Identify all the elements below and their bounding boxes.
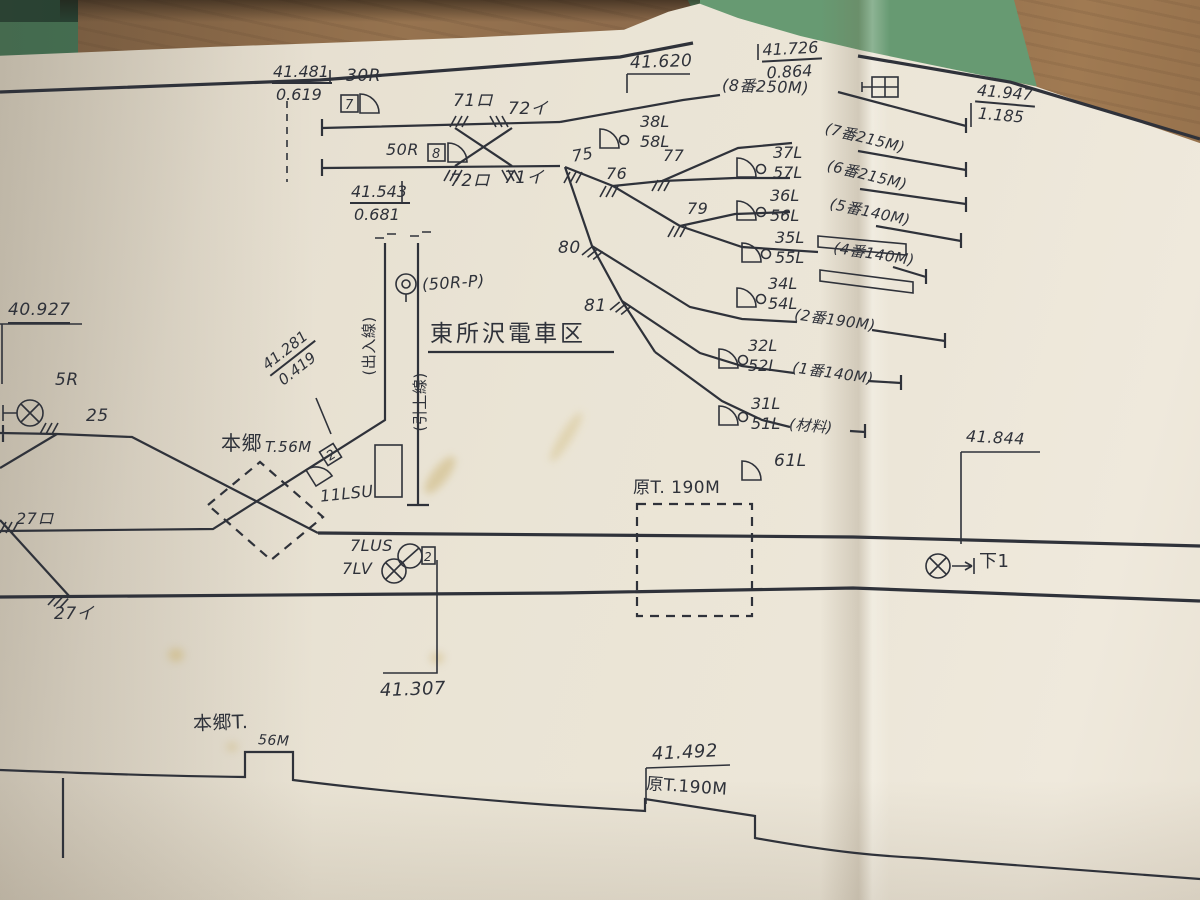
photo-of-track-diagram: { "colors":{"ink":"#2f323a","paper":"#ea…	[0, 0, 1200, 900]
hara-tunnel-box	[637, 504, 752, 616]
chainage-41726: 41.726 0.864	[761, 37, 823, 82]
turnout-72i: 72イ	[508, 101, 548, 119]
signal-label-7LV: 7LV	[342, 561, 372, 578]
turnout-79: 79	[687, 201, 708, 218]
signal-5R	[3, 400, 43, 426]
signal-label-5R: 5R	[55, 372, 79, 390]
signal-label-34L54L: 34L54L	[768, 274, 797, 314]
hara-tunnel-label: 原T. 190M	[633, 480, 720, 498]
box-digit-7LUS: 2	[424, 550, 432, 564]
fan-signal-36L56L	[737, 201, 766, 220]
chainage-brackets	[0, 44, 1040, 804]
turnout-77: 77	[663, 148, 684, 165]
track-diagram-linework: 7 8 2 2	[0, 0, 1200, 900]
main-lines	[0, 533, 1200, 601]
turnout-76: 76	[606, 166, 627, 183]
siding-deiri-label: (出入線)	[362, 291, 378, 401]
fan-signal-38L58L	[600, 129, 629, 148]
box-digit-50R: 8	[432, 147, 440, 162]
fan-signal-35L55L	[742, 243, 771, 262]
signal-label-50R: 50R	[386, 142, 419, 159]
chainage-40927: 40.927	[8, 302, 70, 324]
fan-signal-34L54L	[737, 288, 766, 307]
chainage-41492: 41.492	[652, 742, 719, 764]
signal-label-35L55L: 35L55L	[775, 228, 804, 268]
chainage-41481: 41.481 0.619	[272, 62, 332, 104]
turnout-71ro: 71ロ	[453, 93, 493, 111]
turnout-25: 25	[86, 408, 109, 426]
signal-label-7LUS: 7LUS	[350, 538, 393, 555]
platform-8: (8番250M)	[722, 77, 810, 97]
signal-label-37L57L: 37L57L	[773, 143, 802, 183]
depot-building-rect	[375, 445, 402, 497]
fan-signal-61L	[742, 461, 761, 480]
depot-name: 東所沢電車区	[430, 322, 586, 346]
grid-icon	[862, 77, 898, 97]
turnout-71i: 71イ	[504, 170, 544, 188]
chainage-41947: 41.947 1.185	[973, 80, 1036, 127]
turnout-80: 80	[558, 240, 581, 258]
hongo-tunnel-profile-length: 56M	[258, 733, 290, 749]
signal-label-31L51L: 31L51L	[751, 394, 780, 434]
chainage-41844: 41.844	[966, 428, 1026, 448]
signal-50RP	[396, 274, 416, 302]
hongo-tunnel-box	[208, 462, 323, 560]
signal-shita1	[926, 554, 974, 578]
platform-material: (材料)	[788, 417, 833, 437]
signal-label-61L: 61L	[774, 453, 807, 471]
turnout-81: 81	[584, 298, 607, 316]
chainage-41307: 41.307	[380, 680, 447, 701]
signal-label-30R: 30R	[346, 68, 381, 86]
fan-signal-31L51L	[719, 406, 748, 425]
fan-signal-32L52L	[719, 349, 748, 368]
signal-label-shita1: 下1	[979, 553, 1009, 572]
turnout-75: 75	[571, 145, 595, 165]
siding-hikiage-label: (引上線)	[413, 347, 429, 457]
chainage-41543: 41.543 0.681	[350, 182, 410, 224]
fan-signal-37L57L	[737, 158, 766, 177]
signal-7LV	[382, 559, 406, 583]
box-digit-30R: 7	[345, 98, 354, 113]
gradient-profile	[0, 752, 1200, 879]
signal-label-32L52L: 32L52L	[748, 336, 777, 376]
hongo-tunnel-length: T.56M	[265, 440, 312, 456]
hongo-tunnel-name: 本郷	[221, 433, 262, 454]
turnout-27i: 27イ	[54, 606, 94, 624]
turnout-27ro: 27ロ	[16, 511, 54, 528]
turnout-72ro: 72ロ	[450, 173, 490, 191]
signal-label-36L56L: 36L56L	[770, 186, 799, 226]
chainage-41620: 41.620	[630, 53, 693, 73]
hongo-tunnel-profile-name: 本郷T.	[193, 713, 249, 735]
